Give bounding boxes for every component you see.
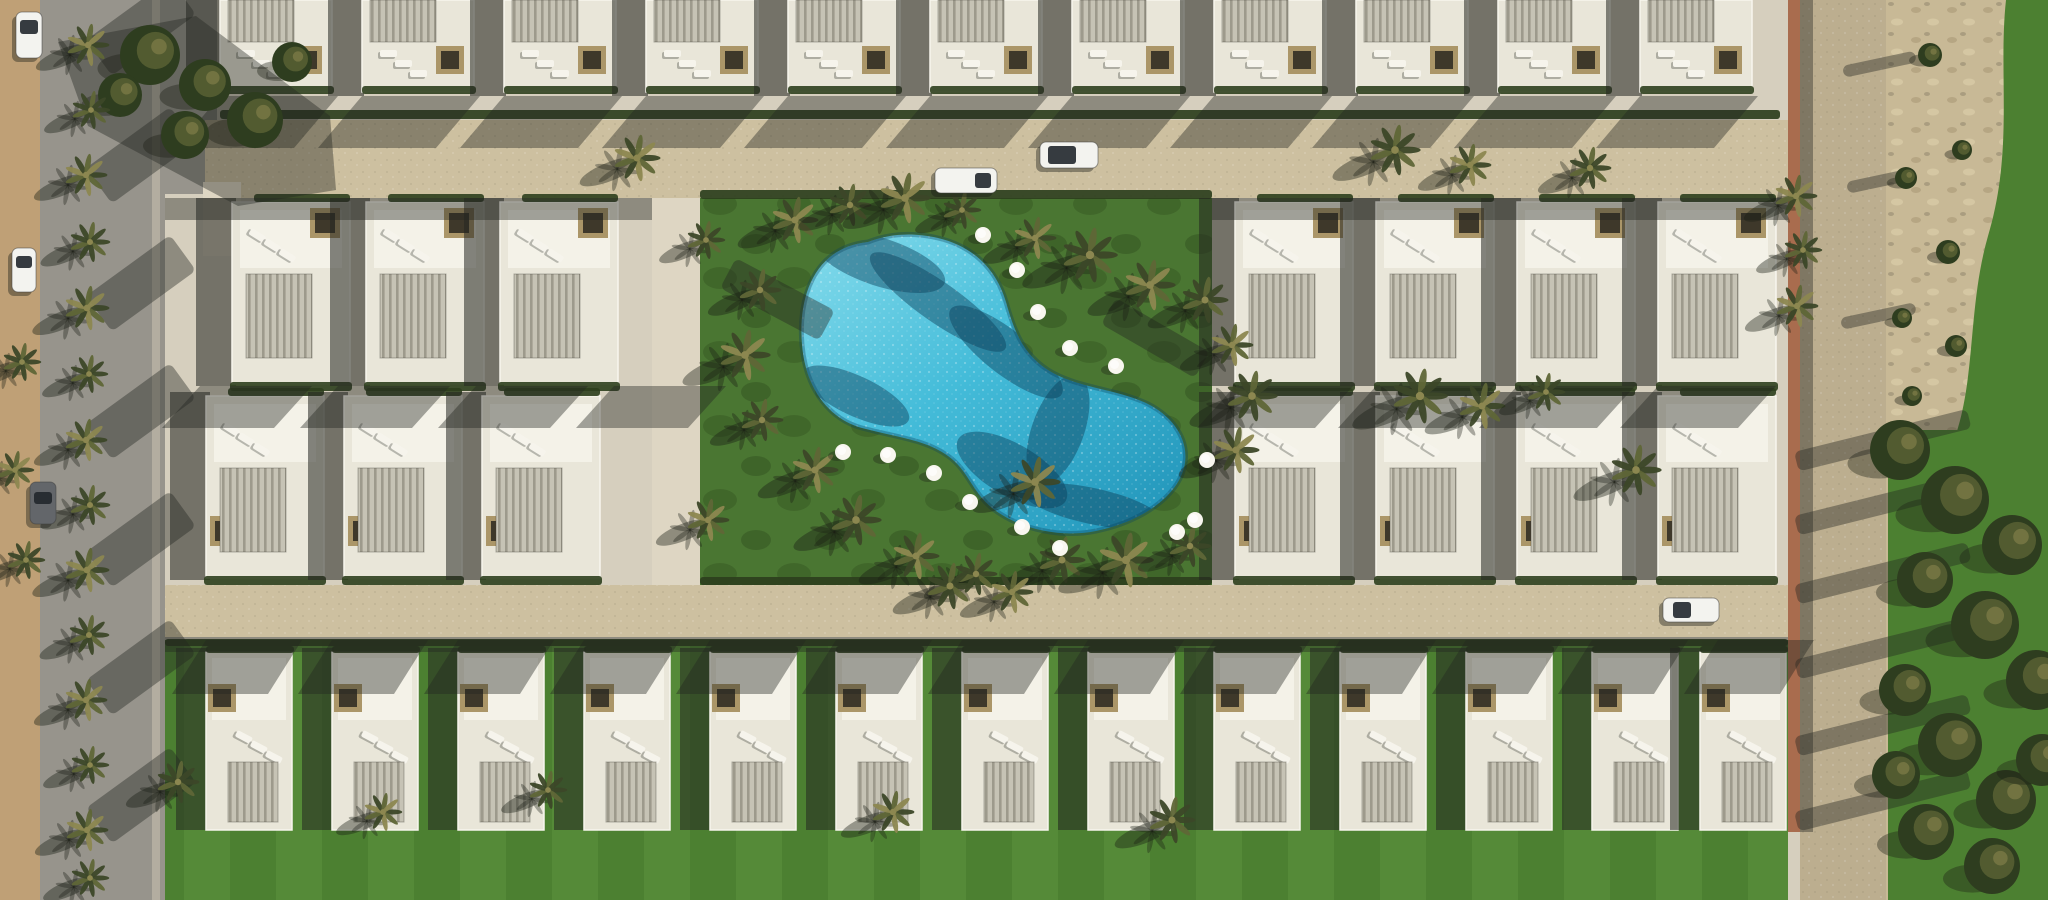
louvered-pergola-roof [732,762,782,822]
boundary-wall [1788,0,1800,832]
louvered-pergola-roof [654,0,720,42]
louvered-pergola-roof [370,0,436,42]
villa-mid [464,194,620,391]
louvered-pergola-roof [228,0,294,42]
louvered-pergola-roof [220,468,286,552]
car-top-road-east [931,168,997,197]
louvered-pergola-roof [1672,274,1738,358]
louvered-pergola-roof [514,274,580,358]
car-parked-mid [8,248,36,296]
roof-skylight [436,46,464,74]
villa-mid [330,194,486,391]
louvered-pergola-roof [1364,0,1430,42]
car-parked-north [12,12,42,62]
roof-skylight [1004,46,1032,74]
louvered-pergola-roof [1614,762,1664,822]
louvered-pergola-roof [358,468,424,552]
villa-mid [1622,194,1778,391]
louvered-pergola-roof [1648,0,1714,42]
louvered-pergola-roof [796,0,862,42]
villa-top [1464,0,1612,96]
louvered-pergola-roof [1236,762,1286,822]
villa-mid [196,194,352,391]
roof-skylight [1288,46,1316,74]
villa-top [754,0,902,96]
villa-top [612,0,760,96]
louvered-pergola-roof [1390,468,1456,552]
villa-top [1322,0,1470,96]
louvered-pergola-roof [1249,468,1315,552]
aerial-scene-canvas [0,0,2048,900]
louvered-pergola-roof [1362,762,1412,822]
villa-top [1180,0,1328,96]
villa-top [896,0,1044,96]
roof-skylight [720,46,748,74]
louvered-pergola-roof [1390,274,1456,358]
louvered-pergola-roof [496,468,562,552]
villa-top [1038,0,1186,96]
car-mid-road [1659,598,1719,626]
louvered-pergola-roof [1672,468,1738,552]
louvered-pergola-roof [512,0,578,42]
louvered-pergola-roof [228,762,278,822]
louvered-pergola-roof [246,274,312,358]
car-parked-south [26,482,56,528]
left-sand-strip [0,0,40,900]
louvered-pergola-roof [1722,762,1772,822]
louvered-pergola-roof [380,274,446,358]
aerial-villa-development-render [0,0,2048,900]
louvered-pergola-roof [1506,0,1572,42]
louvered-pergola-roof [1080,0,1146,42]
louvered-pergola-roof [1531,274,1597,358]
louvered-pergola-roof [1249,274,1315,358]
villa-mid [1340,194,1496,391]
louvered-pergola-roof [606,762,656,822]
louvered-pergola-roof [1488,762,1538,822]
roof-skylight [1430,46,1458,74]
villa-top [328,0,476,96]
villa-mid [1481,194,1637,391]
roof-skylight [578,46,606,74]
car-top-road-west [1036,142,1098,172]
roof-skylight [862,46,890,74]
row1-right-shade [1212,198,1788,220]
louvered-pergola-roof [1531,468,1597,552]
louvered-pergola-roof [1222,0,1288,42]
row1-left-shade [165,198,652,220]
louvered-pergola-roof [938,0,1004,42]
top-villa-shadow-band [176,96,1758,148]
villa-top [1606,0,1754,96]
louvered-pergola-roof [984,762,1034,822]
villa-top [470,0,618,96]
roof-skylight [1146,46,1174,74]
wall-shade [1800,0,1813,832]
roof-skylight [1572,46,1600,74]
roof-skylight [1714,46,1742,74]
